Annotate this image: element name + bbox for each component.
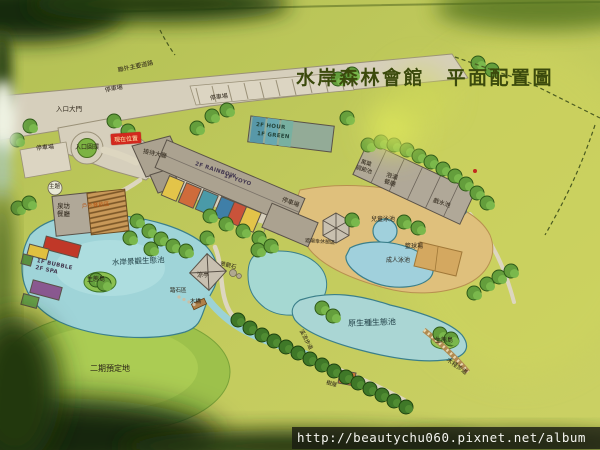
label-eco-island-a: 生態島 — [87, 276, 105, 283]
label-native-pond: 原生種生態池 — [348, 317, 396, 328]
label-theme: 主題 — [49, 184, 60, 191]
label-wood-bridge: 木橋 — [190, 299, 201, 306]
map-title: 水岸森林會館 平面配置圖 — [296, 63, 554, 90]
label-basketball: 籃球場 — [405, 243, 423, 250]
label-phase2: 二期預定地 — [90, 364, 130, 374]
sign-photo: 水岸森林會館 平面配置圖 聯外主要道路 停車場 停車場 入口大門 停車場 入口圓… — [0, 0, 600, 450]
red-marker-dot — [473, 169, 477, 173]
outdoor-dining-area — [87, 189, 129, 235]
label-eco-island-b: 生態島 — [435, 337, 453, 344]
label-stepping-stones: 踏石區 — [170, 288, 187, 295]
you-are-here-badge: 現在位置 — [111, 132, 142, 145]
label-kids-pool: 兒童泳池 — [371, 216, 395, 223]
label-entrance-circle: 入口圓環 — [75, 144, 99, 151]
label-spring-restaurant: 泉坊 餐廳 — [57, 203, 70, 219]
label-adult-pool: 成人泳池 — [386, 257, 410, 264]
watermark-url: http://beautychu060.pixnet.net/album — [292, 427, 600, 449]
label-entrance-gate: 入口大門 — [56, 106, 82, 114]
label-pavilion: 涼亭 — [197, 272, 209, 279]
